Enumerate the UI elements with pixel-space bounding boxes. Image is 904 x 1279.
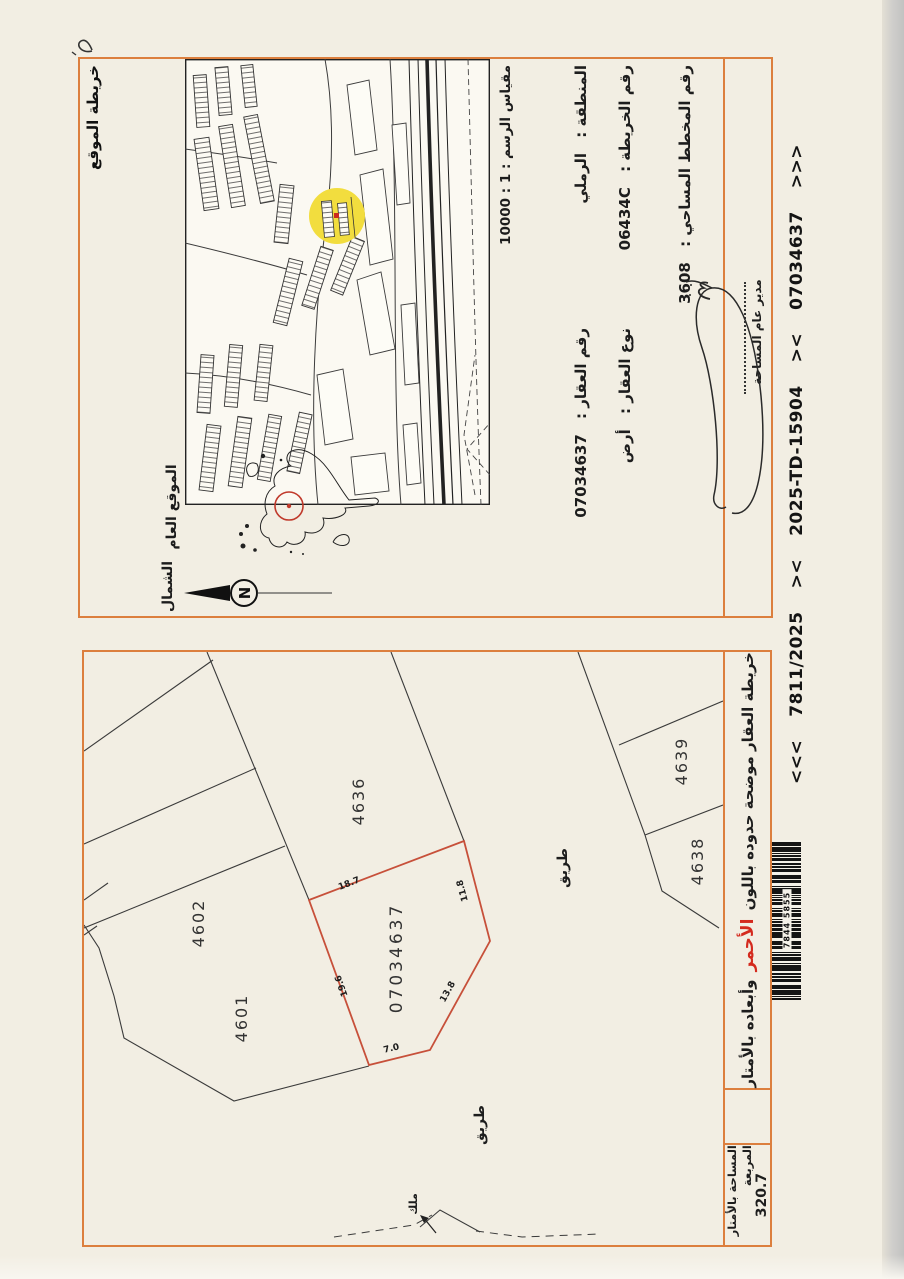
- plot-4636: 4636: [349, 777, 368, 826]
- site-marker-dot: [334, 213, 339, 218]
- scale-label: مقياس الرسم : 1 : 10000: [498, 65, 514, 245]
- barcode-digits: 7844 5855: [783, 889, 792, 951]
- dashed-ownership-boundary: [334, 1210, 600, 1237]
- note-red-word: الأحمر: [738, 916, 758, 975]
- plot-4638: 4638: [688, 837, 707, 886]
- location-highlight-dot: [287, 504, 291, 508]
- dim-11-8: 11.8: [455, 878, 470, 902]
- field-parcel-no-value: 07034637: [572, 434, 590, 518]
- field-parcel-type: نوع العقار : أرض: [616, 328, 634, 463]
- signature-scribble: [640, 259, 775, 531]
- road-labels: طريق طريق: [472, 848, 571, 1145]
- field-map-no: رقم الخريطة : 06434C: [616, 65, 634, 250]
- document-rotated-content: خريطة الموقع: [0, 0, 904, 1279]
- field-parcel-no-label: رقم العقار :: [572, 328, 590, 419]
- area-cell: المساحة بالأمتار المربعة 320.7: [725, 1143, 770, 1245]
- plot-4639: 4639: [672, 737, 691, 786]
- dim-7-0: 7.0: [383, 1042, 401, 1056]
- field-plan-no-label: رقم المخطط المساحي :: [676, 65, 694, 247]
- map-panel-bottom-strip: المساحة بالأمتار المربعة 320.7 خريطة الع…: [723, 652, 770, 1245]
- plot-4602: 4602: [189, 899, 208, 948]
- parcel-map-panel: 07034637 18.7 11.8 13.8 7.0 19.6 4601 46…: [82, 650, 772, 1247]
- scanned-survey-document: خريطة الموقع: [0, 0, 904, 1279]
- footer-case-number: 7811/2025: [787, 611, 807, 716]
- site-location-map: [185, 59, 490, 505]
- footer-close: >>>: [787, 144, 807, 188]
- field-map-no-label: رقم الخريطة :: [616, 65, 634, 172]
- note-before: خريطة العقار موضحة حدوده باللون: [739, 652, 757, 910]
- subject-parcel-number: 07034637: [387, 903, 407, 1014]
- owner-arrow-icon: [420, 1215, 436, 1233]
- scan-edge-highlight: [0, 1255, 904, 1279]
- site-map-title: خريطة الموقع: [84, 65, 102, 170]
- footer-sep1: ><: [787, 559, 807, 589]
- plot-boundaries: [84, 652, 723, 1101]
- field-parcel-type-value: أرض: [616, 429, 634, 463]
- field-region-value: الرملي: [572, 153, 590, 204]
- owner-label: ملك: [407, 1193, 420, 1215]
- north-label: الشمال: [160, 561, 176, 612]
- field-parcel-no: رقم العقار : 07034637: [572, 328, 590, 518]
- field-map-no-value: 06434C: [616, 187, 634, 250]
- note-after: وأبعاده بالأمتار: [739, 980, 757, 1088]
- note-text: خريطة العقار موضحة حدوده باللون الأحمر و…: [738, 652, 758, 1088]
- field-region-label: المنطقة :: [572, 65, 590, 138]
- barcode: 7844 5855: [772, 840, 801, 1000]
- north-arrow-icon: [184, 585, 230, 601]
- handwritten-mark: [70, 33, 98, 59]
- road-label-1: طريق: [555, 848, 571, 888]
- area-label: المساحة بالأمتار المربعة: [725, 1145, 754, 1245]
- note-cell: خريطة العقار موضحة حدوده باللون الأحمر و…: [725, 652, 770, 1088]
- north-compass-icon: N: [178, 571, 338, 613]
- empty-cell: [725, 1088, 770, 1144]
- dim-19-6: 19.6: [334, 974, 351, 998]
- scan-edge-shadow: [882, 0, 904, 1279]
- islet-northeast: [247, 463, 259, 476]
- footer-parcel-number: 07034637: [787, 211, 807, 310]
- dim-18-7: 18.7: [337, 875, 361, 892]
- footer-td-number: 2025-TD-15904: [787, 385, 807, 536]
- dim-13-8: 13.8: [438, 980, 458, 1004]
- footer-sep2: ><: [787, 333, 807, 363]
- islet-dots: [239, 454, 304, 555]
- plot-4601: 4601: [232, 994, 251, 1043]
- signature-dots: [686, 284, 692, 296]
- area-value: 320.7: [754, 1173, 770, 1217]
- parcel-map-drawing: 07034637 18.7 11.8 13.8 7.0 19.6 4601 46…: [84, 652, 723, 1245]
- islet-southwest: [333, 535, 349, 546]
- footer-reference-line: <<< 7811/2025 >< 2025-TD-15904 >< 070346…: [787, 144, 807, 784]
- general-location-map: [233, 443, 387, 560]
- footer-open: <<<: [787, 740, 807, 784]
- field-parcel-type-label: نوع العقار :: [616, 328, 634, 414]
- road-label-2: طريق: [472, 1105, 488, 1145]
- compass-letter: N: [236, 587, 254, 600]
- general-location-label: الموقع العام: [164, 464, 180, 550]
- field-region: المنطقة : الرملي: [572, 65, 590, 204]
